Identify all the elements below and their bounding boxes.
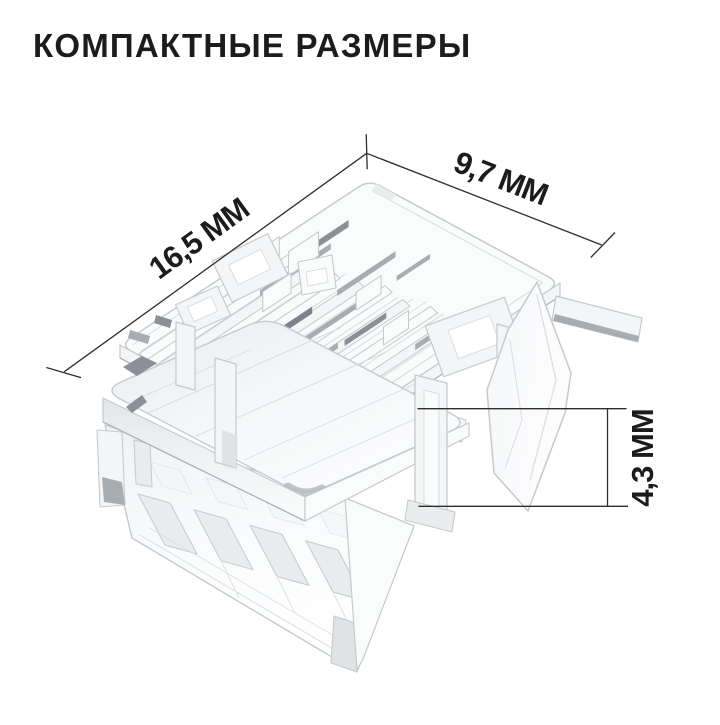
svg-text:4,3 ММ: 4,3 ММ bbox=[625, 409, 660, 506]
svg-text:9,7 ММ: 9,7 ММ bbox=[449, 144, 552, 212]
